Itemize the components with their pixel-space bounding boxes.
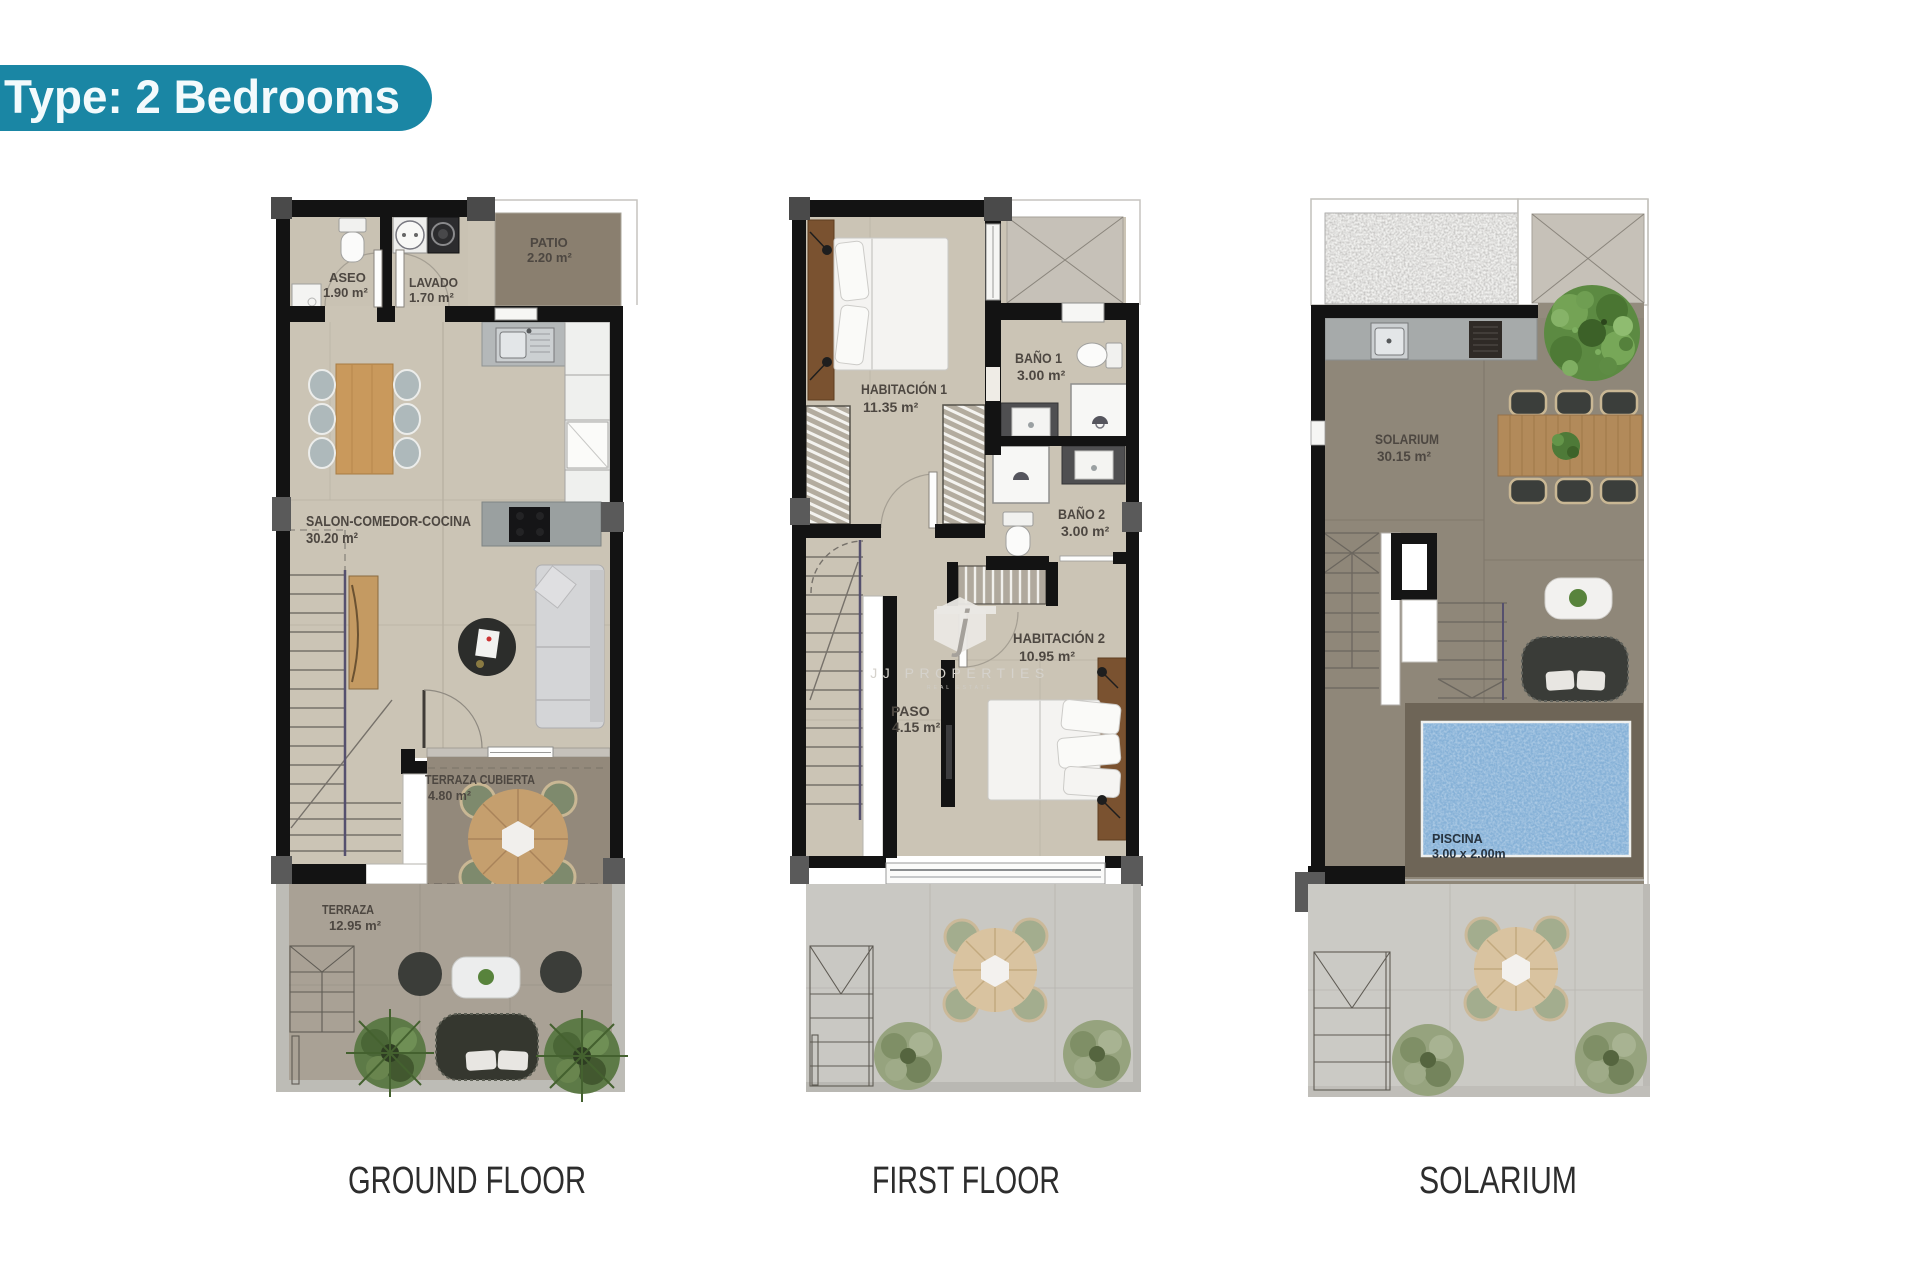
svg-text:BAÑO 1: BAÑO 1 <box>1015 349 1062 366</box>
svg-text:11.35 m²: 11.35 m² <box>863 399 919 415</box>
svg-text:PATIO: PATIO <box>530 235 568 250</box>
svg-text:2.20 m²: 2.20 m² <box>527 250 572 265</box>
svg-text:GROUND FLOOR: GROUND FLOOR <box>348 1160 586 1202</box>
svg-text:PISCINA: PISCINA <box>1432 832 1483 846</box>
svg-text:BAÑO 2: BAÑO 2 <box>1058 505 1105 522</box>
svg-text:30.20 m²: 30.20 m² <box>306 530 358 547</box>
svg-text:ASEO: ASEO <box>329 270 366 285</box>
svg-text:SOLARIUM: SOLARIUM <box>1419 1160 1577 1202</box>
svg-text:3.00 m²: 3.00 m² <box>1061 523 1110 539</box>
svg-text:REAL ESTATE: REAL ESTATE <box>927 685 993 691</box>
svg-text:Type: 2 Bedrooms: Type: 2 Bedrooms <box>4 70 400 123</box>
svg-text:PASO: PASO <box>891 703 930 719</box>
svg-text:FIRST FLOOR: FIRST FLOOR <box>872 1160 1060 1202</box>
svg-text:3.00 x 2.00m: 3.00 x 2.00m <box>1432 847 1506 861</box>
svg-text:1.70 m²: 1.70 m² <box>409 290 454 305</box>
svg-text:30.15 m²: 30.15 m² <box>1377 448 1431 464</box>
svg-text:HABITACIÓN 2: HABITACIÓN 2 <box>1013 629 1105 646</box>
svg-text:TERRAZA CUBIERTA: TERRAZA CUBIERTA <box>425 773 535 787</box>
svg-text:1.90 m²: 1.90 m² <box>323 285 368 300</box>
svg-text:TERRAZA: TERRAZA <box>322 902 375 917</box>
svg-text:HABITACIÓN 1: HABITACIÓN 1 <box>861 380 947 397</box>
svg-text:4.15 m²: 4.15 m² <box>892 719 941 735</box>
svg-text:10.95 m²: 10.95 m² <box>1019 648 1075 664</box>
svg-text:SOLARIUM: SOLARIUM <box>1375 431 1439 447</box>
svg-text:3.00 m²: 3.00 m² <box>1017 367 1066 383</box>
svg-text:LAVADO: LAVADO <box>409 275 458 290</box>
svg-text:SALON-COMEDOR-COCINA: SALON-COMEDOR-COCINA <box>306 513 471 530</box>
svg-text:4.80 m²: 4.80 m² <box>428 789 471 803</box>
svg-text:12.95 m²: 12.95 m² <box>329 918 382 933</box>
svg-text:JJ PROPERTIES: JJ PROPERTIES <box>870 665 1049 681</box>
